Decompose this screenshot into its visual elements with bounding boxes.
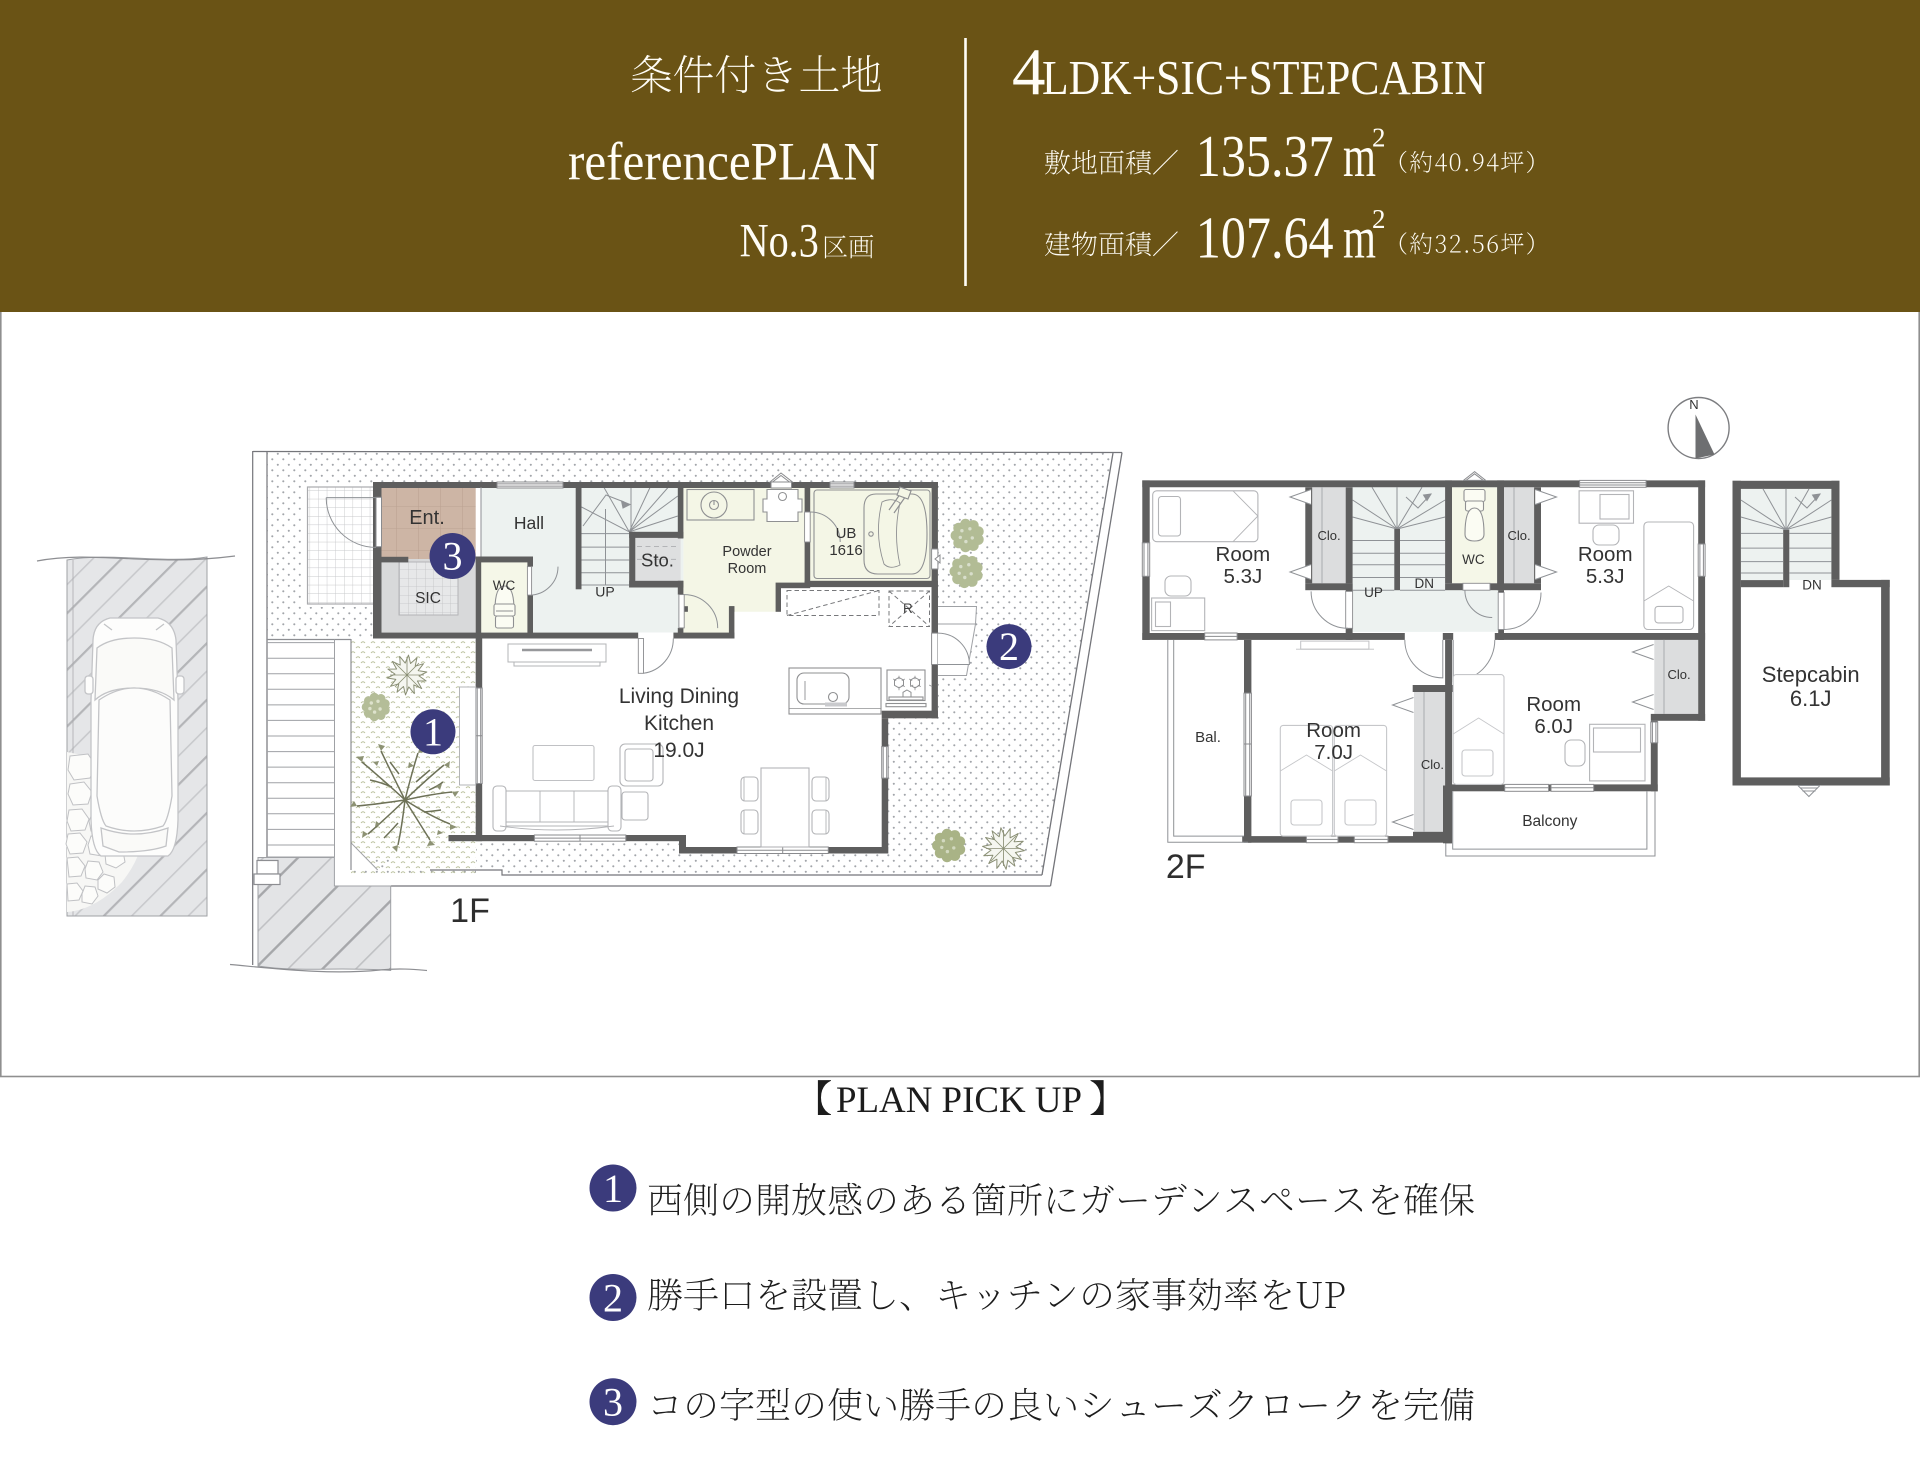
svg-text:WC: WC	[1462, 552, 1485, 567]
svg-text:Clo.: Clo.	[1668, 667, 1691, 682]
svg-text:Room: Room	[1578, 543, 1633, 566]
svg-text:Stepcabin: Stepcabin	[1762, 662, 1860, 687]
svg-text:LDK+SIC+STEPCABIN: LDK+SIC+STEPCABIN	[1042, 50, 1486, 105]
svg-text:19.0J: 19.0J	[653, 739, 704, 762]
svg-text:UP: UP	[1364, 585, 1383, 600]
svg-text:5.3J: 5.3J	[1224, 565, 1263, 588]
svg-text:7.0J: 7.0J	[1314, 741, 1353, 764]
svg-text:4: 4	[1012, 35, 1046, 109]
svg-text:Hall: Hall	[514, 513, 544, 533]
svg-text:Clo.: Clo.	[1508, 528, 1531, 543]
svg-text:R: R	[903, 601, 913, 616]
svg-text:N: N	[1689, 397, 1698, 412]
svg-text:Powder: Powder	[722, 544, 771, 560]
svg-text:1616: 1616	[829, 542, 862, 559]
svg-text:2: 2	[1372, 204, 1386, 234]
svg-text:Kitchen: Kitchen	[644, 712, 714, 735]
svg-text:Balcony: Balcony	[1522, 813, 1577, 830]
svg-text:referencePLAN: referencePLAN	[568, 132, 879, 192]
svg-text:UB: UB	[836, 525, 857, 542]
svg-text:Ent.: Ent.	[409, 507, 445, 529]
svg-text:Room: Room	[728, 561, 767, 577]
svg-text:WC: WC	[493, 578, 516, 593]
svg-text:1: 1	[423, 709, 443, 754]
svg-text:Sto.: Sto.	[641, 550, 674, 571]
svg-text:1: 1	[603, 1166, 623, 1211]
svg-text:2: 2	[1372, 123, 1386, 153]
svg-text:SIC: SIC	[415, 590, 441, 607]
svg-text:2: 2	[999, 624, 1019, 669]
svg-text:Clo.: Clo.	[1421, 757, 1444, 772]
svg-text:Living Dining: Living Dining	[619, 685, 739, 708]
svg-text:UP: UP	[595, 584, 614, 600]
svg-text:2: 2	[603, 1276, 623, 1321]
svg-text:107.64: 107.64	[1196, 205, 1334, 271]
svg-text:6.0J: 6.0J	[1534, 715, 1573, 738]
svg-text:Room: Room	[1216, 543, 1271, 566]
svg-text:135.37: 135.37	[1196, 123, 1334, 189]
svg-text:2F: 2F	[1166, 848, 1206, 886]
svg-text:5.3J: 5.3J	[1586, 565, 1625, 588]
svg-text:Bal.: Bal.	[1195, 729, 1221, 746]
svg-text:Room: Room	[1306, 719, 1361, 742]
svg-text:6.1J: 6.1J	[1790, 686, 1832, 711]
svg-text:3: 3	[443, 534, 463, 579]
svg-text:Clo.: Clo.	[1317, 528, 1340, 543]
svg-text:DN: DN	[1802, 578, 1822, 593]
svg-text:No.3: No.3	[740, 215, 819, 268]
svg-text:Room: Room	[1526, 693, 1581, 716]
svg-text:PLAN PICK UP: PLAN PICK UP	[836, 1080, 1082, 1121]
svg-text:DN: DN	[1415, 576, 1435, 591]
svg-text:3: 3	[603, 1380, 623, 1425]
svg-text:1F: 1F	[450, 892, 490, 930]
